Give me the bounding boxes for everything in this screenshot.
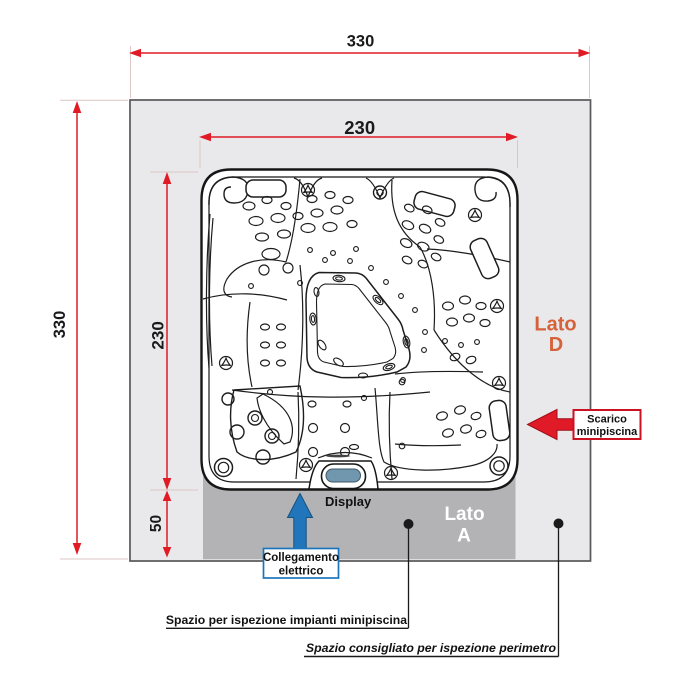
svg-text:elettrico: elettrico bbox=[279, 566, 324, 578]
svg-text:Lato: Lato bbox=[534, 314, 576, 336]
svg-text:Collegamento: Collegamento bbox=[263, 552, 339, 564]
svg-text:A: A bbox=[457, 526, 471, 547]
svg-text:330: 330 bbox=[347, 33, 375, 51]
svg-text:D: D bbox=[549, 334, 563, 356]
svg-text:330: 330 bbox=[51, 311, 69, 339]
svg-text:230: 230 bbox=[149, 321, 168, 349]
svg-text:230: 230 bbox=[344, 117, 375, 138]
svg-text:minipiscina: minipiscina bbox=[577, 426, 638, 438]
svg-text:Spazio per ispezione impianti: Spazio per ispezione impianti minipiscin… bbox=[166, 613, 407, 627]
svg-text:50: 50 bbox=[148, 515, 165, 532]
svg-text:Spazio consigliato per ispezio: Spazio consigliato per ispezione perimet… bbox=[306, 641, 557, 655]
svg-text:Lato: Lato bbox=[444, 504, 484, 525]
svg-text:Scarico: Scarico bbox=[587, 414, 627, 426]
svg-text:Display: Display bbox=[325, 494, 372, 509]
